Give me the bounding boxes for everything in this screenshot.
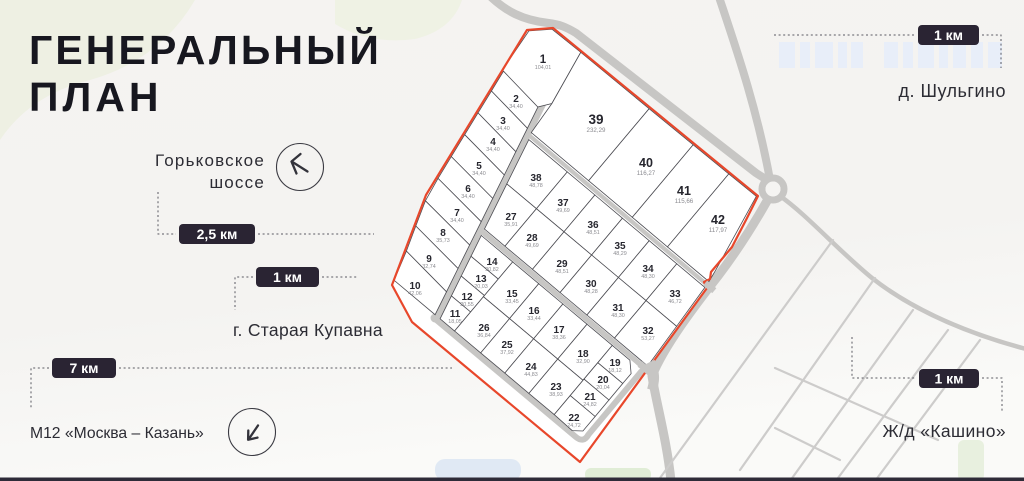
svg-text:34,40: 34,40 [450,218,464,224]
svg-text:34,40: 34,40 [509,104,523,110]
svg-text:32,90: 32,90 [576,359,590,365]
svg-text:35,91: 35,91 [504,222,518,228]
svg-text:20,04: 20,04 [596,385,610,391]
svg-text:41: 41 [677,184,691,198]
svg-text:38,93: 38,93 [549,392,563,398]
svg-text:53,27: 53,27 [641,336,655,342]
svg-text:20,03: 20,03 [474,284,488,290]
svg-text:46,72: 46,72 [668,299,682,305]
svg-text:20,82: 20,82 [485,267,499,273]
svg-text:32,74: 32,74 [422,264,436,270]
svg-text:Ж/д «Кашино»: Ж/д «Кашино» [883,421,1007,441]
svg-text:33,44: 33,44 [527,316,541,322]
svg-text:48,78: 48,78 [529,183,543,189]
svg-text:ПЛАН: ПЛАН [29,74,162,120]
svg-text:М12 «Москва – Казань»: М12 «Москва – Казань» [30,425,204,442]
svg-text:116,27: 116,27 [637,170,656,177]
svg-text:232,29: 232,29 [587,127,606,134]
svg-text:1 км: 1 км [934,27,963,43]
svg-text:117,97: 117,97 [709,227,728,234]
svg-text:48,29: 48,29 [613,251,627,257]
svg-text:48,51: 48,51 [586,230,600,236]
svg-text:42: 42 [711,213,725,227]
svg-text:39: 39 [588,112,603,127]
svg-text:36,84: 36,84 [477,333,491,339]
svg-text:104,01: 104,01 [535,65,552,71]
svg-text:48,30: 48,30 [611,313,625,319]
svg-text:40: 40 [639,156,653,170]
svg-text:38,36: 38,36 [552,335,566,341]
svg-text:ГЕНЕРАЛЬНЫЙ: ГЕНЕРАЛЬНЫЙ [29,27,382,73]
svg-text:шоссе: шоссе [209,173,265,192]
svg-text:18,05: 18,05 [448,319,462,325]
svg-text:35,73: 35,73 [436,238,450,244]
svg-text:34,40: 34,40 [461,194,475,200]
svg-text:1 км: 1 км [273,269,302,285]
svg-text:37,92: 37,92 [500,350,514,356]
svg-text:49,69: 49,69 [525,243,539,249]
svg-text:г. Старая Купавна: г. Старая Купавна [233,320,383,340]
svg-text:34,40: 34,40 [472,171,486,177]
svg-text:24,82: 24,82 [583,402,597,408]
svg-text:д. Шульгино: д. Шульгино [898,81,1006,101]
svg-text:7 км: 7 км [69,360,98,376]
svg-text:48,30: 48,30 [641,274,655,280]
svg-text:34,40: 34,40 [496,126,510,132]
svg-text:34,40: 34,40 [486,147,500,153]
svg-text:20,55: 20,55 [460,302,474,308]
svg-text:42,06: 42,06 [408,291,422,297]
svg-text:2,5 км: 2,5 км [197,226,238,242]
svg-text:1 км: 1 км [934,371,963,387]
svg-text:48,51: 48,51 [555,269,569,275]
svg-text:44,83: 44,83 [524,372,538,378]
svg-text:33,45: 33,45 [505,299,519,305]
svg-text:49,69: 49,69 [556,208,570,214]
svg-text:115,66: 115,66 [675,198,694,205]
svg-text:48,28: 48,28 [584,289,598,295]
svg-text:18,12: 18,12 [608,368,622,374]
svg-text:24,72: 24,72 [567,423,581,429]
svg-text:Горьковское: Горьковское [155,151,265,170]
